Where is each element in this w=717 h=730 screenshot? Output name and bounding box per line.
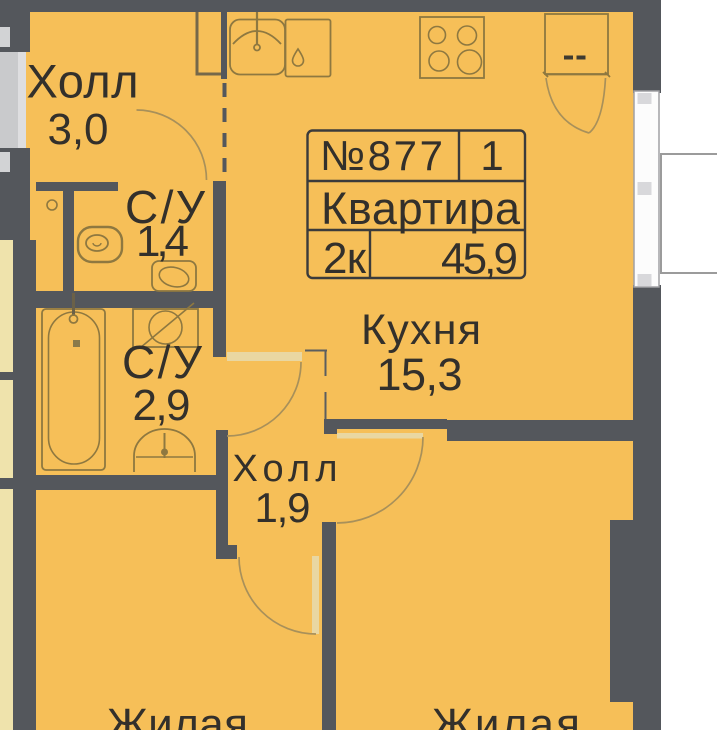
svg-text:45,9: 45,9 bbox=[441, 235, 518, 284]
svg-text:Холл: Холл bbox=[27, 55, 139, 108]
svg-text:Кухня: Кухня bbox=[361, 306, 481, 354]
svg-text:№877: №877 bbox=[320, 132, 443, 179]
svg-text:Жилая: Жилая bbox=[432, 700, 580, 730]
svg-text:2,9: 2,9 bbox=[133, 381, 191, 430]
svg-text:Жилая: Жилая bbox=[107, 700, 248, 730]
svg-text:1: 1 bbox=[480, 132, 503, 179]
svg-text:Квартира: Квартира bbox=[321, 183, 521, 234]
svg-text:3,0: 3,0 bbox=[48, 105, 109, 154]
svg-text:1,9: 1,9 bbox=[255, 484, 311, 531]
svg-text:1,4: 1,4 bbox=[136, 217, 189, 266]
svg-text:2к: 2к bbox=[323, 234, 367, 283]
svg-text:15,3: 15,3 bbox=[377, 349, 463, 400]
